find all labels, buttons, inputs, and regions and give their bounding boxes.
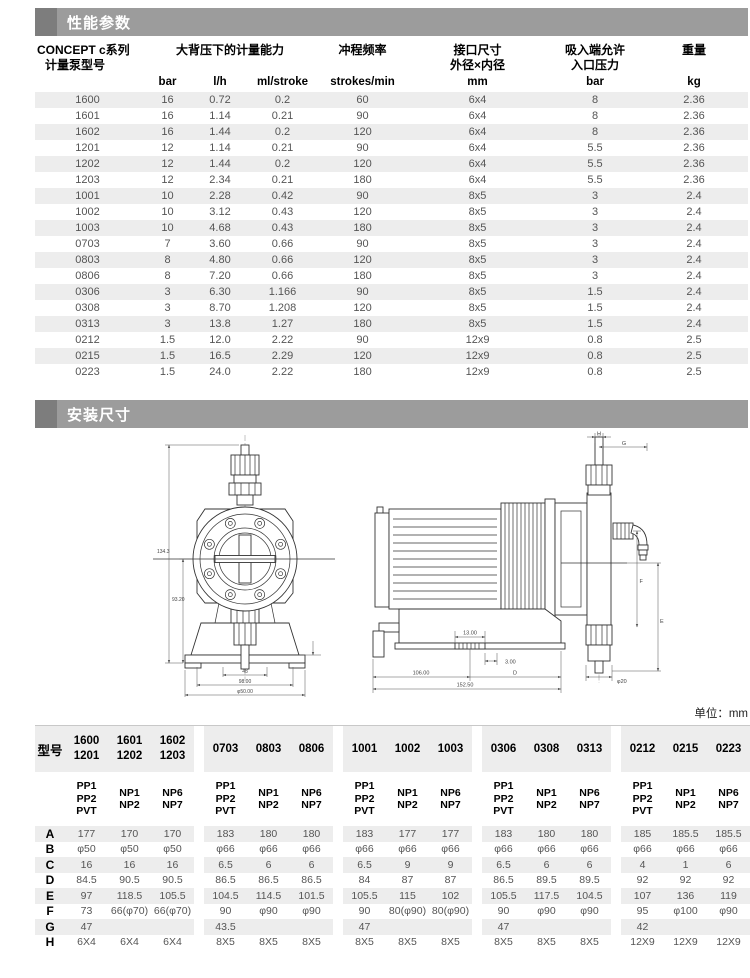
perf-units-row: bar l/h ml/stroke strokes/min mm bar kg bbox=[35, 74, 748, 92]
dim-value-cell: 6 bbox=[247, 857, 290, 873]
perf-value-cell: 1.27 bbox=[245, 316, 320, 332]
dim-value-cell: 6 bbox=[707, 857, 750, 873]
dim-material-cell: NP1NP2 bbox=[108, 772, 151, 826]
dim-value-cell: 84 bbox=[343, 873, 386, 889]
column-gap bbox=[333, 857, 343, 873]
perf-unit-kg: kg bbox=[640, 74, 748, 92]
dim-value-cell: 104.5 bbox=[568, 888, 611, 904]
pump-side-view-drawing: H G F E φ20 13.00 3.00 106.00 D 152.50 bbox=[365, 431, 665, 703]
perf-header-row: CONCEPT c系列 计量泵型号 大背压下的计量能力 冲程频率 接口尺寸 外径… bbox=[35, 42, 748, 74]
perf-value-cell: 0.43 bbox=[245, 204, 320, 220]
dim-value-cell bbox=[386, 919, 429, 935]
dim-value-cell: 183 bbox=[204, 826, 247, 842]
dim-value-cell: 185 bbox=[621, 826, 664, 842]
dim-material-cell: NP1NP2 bbox=[247, 772, 290, 826]
perf-table-row: 1602161.440.21206x482.36 bbox=[35, 124, 748, 140]
dim-value-cell: 12X9 bbox=[621, 935, 664, 951]
perf-value-cell: 2.34 bbox=[195, 172, 245, 188]
perf-value-cell: 2.36 bbox=[640, 108, 748, 124]
perf-table-row: 1003104.680.431808x532.4 bbox=[35, 220, 748, 236]
installation-drawings: 134.3 93.20 48 98.00 φ50.00 bbox=[35, 431, 748, 703]
section-bar-accent-square bbox=[35, 400, 57, 428]
dim-value-cell: 80(φ90) bbox=[386, 904, 429, 920]
perf-value-cell: 6x4 bbox=[405, 156, 550, 172]
perf-model-cell: 1203 bbox=[35, 172, 140, 188]
dim-model-cell: 0803 bbox=[247, 726, 290, 773]
dim-value-cell: 16 bbox=[65, 857, 108, 873]
dim-value-cell: 118.5 bbox=[108, 888, 151, 904]
dim-value-cell: 87 bbox=[429, 873, 472, 889]
perf-value-cell: 3 bbox=[550, 204, 640, 220]
dim-value-cell: 90 bbox=[343, 904, 386, 920]
performance-section-title: 性能参数 bbox=[67, 12, 131, 33]
performance-section-bar: 性能参数 bbox=[35, 8, 748, 36]
perf-header-suction-line2: 入口压力 bbox=[550, 58, 640, 73]
perf-header-model-line2: 计量泵型号 bbox=[37, 58, 140, 73]
column-gap bbox=[611, 726, 621, 773]
dim-value-cell: 8X5 bbox=[429, 935, 472, 951]
perf-unit-blank bbox=[35, 74, 140, 92]
dimension-label: 13.00 bbox=[463, 631, 477, 637]
dim-material-cell: PP1PP2PVT bbox=[204, 772, 247, 826]
dim-material-cell: PP1PP2PVT bbox=[482, 772, 525, 826]
perf-value-cell: 12 bbox=[140, 140, 195, 156]
dim-value-cell: φ66 bbox=[621, 842, 664, 858]
model-column-header: 型号 bbox=[35, 726, 65, 773]
perf-value-cell: 16.5 bbox=[195, 348, 245, 364]
perf-value-cell: 1.5 bbox=[140, 332, 195, 348]
dim-value-cell: 90 bbox=[482, 904, 525, 920]
column-gap bbox=[333, 873, 343, 889]
dim-row-label: F bbox=[35, 904, 65, 920]
dim-value-cell: 86.5 bbox=[204, 873, 247, 889]
perf-value-cell: 5.5 bbox=[550, 140, 640, 156]
perf-model-cell: 1001 bbox=[35, 188, 140, 204]
dim-value-cell: φ66 bbox=[664, 842, 707, 858]
perf-value-cell: 8 bbox=[550, 124, 640, 140]
column-gap bbox=[472, 826, 482, 842]
perf-table-row: 1201121.140.21906x45.52.36 bbox=[35, 140, 748, 156]
column-gap bbox=[611, 888, 621, 904]
column-gap bbox=[194, 857, 204, 873]
dim-value-cell: 8X5 bbox=[247, 935, 290, 951]
perf-value-cell: 1.5 bbox=[550, 316, 640, 332]
dim-model-cell: 16001201 bbox=[65, 726, 108, 773]
dim-value-cell: 43.5 bbox=[204, 919, 247, 935]
perf-header-weight: 重量 bbox=[640, 42, 748, 74]
dim-model-cell: 0215 bbox=[664, 726, 707, 773]
dim-value-cell: φ50 bbox=[65, 842, 108, 858]
perf-table-row: 070373.600.66908x532.4 bbox=[35, 236, 748, 252]
dim-table-row: C1616166.5666.5996.566416 bbox=[35, 857, 750, 873]
perf-header-model-line1: CONCEPT c系列 bbox=[37, 43, 140, 58]
dim-table-row: A177170170183180180183177177183180180185… bbox=[35, 826, 750, 842]
perf-value-cell: 1.44 bbox=[195, 124, 245, 140]
perf-value-cell: 6x4 bbox=[405, 108, 550, 124]
perf-value-cell: 8 bbox=[140, 252, 195, 268]
perf-value-cell: 2.36 bbox=[640, 92, 748, 108]
perf-value-cell: 8 bbox=[140, 268, 195, 284]
dim-value-cell bbox=[664, 919, 707, 935]
dimension-label: 3.00 bbox=[505, 660, 516, 666]
dim-value-cell: φ50 bbox=[151, 842, 194, 858]
perf-value-cell: 3 bbox=[550, 188, 640, 204]
perf-value-cell: 120 bbox=[320, 252, 405, 268]
perf-model-cell: 0803 bbox=[35, 252, 140, 268]
column-gap bbox=[333, 826, 343, 842]
column-gap bbox=[333, 904, 343, 920]
dim-value-cell: 117.5 bbox=[525, 888, 568, 904]
dim-value-cell: 6.5 bbox=[204, 857, 247, 873]
column-gap bbox=[611, 873, 621, 889]
perf-table-row: 02231.524.02.2218012x90.82.5 bbox=[35, 364, 748, 380]
column-gap bbox=[611, 826, 621, 842]
perf-value-cell: 8x5 bbox=[405, 220, 550, 236]
perf-model-cell: 1600 bbox=[35, 92, 140, 108]
dim-material-cell: NP6NP7 bbox=[707, 772, 750, 826]
perf-value-cell: 2.22 bbox=[245, 364, 320, 380]
dim-value-cell: 84.5 bbox=[65, 873, 108, 889]
dimension-label: φ50.00 bbox=[237, 689, 253, 695]
dim-value-cell: 1 bbox=[664, 857, 707, 873]
perf-value-cell: 2.4 bbox=[640, 316, 748, 332]
perf-value-cell: 1.14 bbox=[195, 108, 245, 124]
dim-material-cell: NP1NP2 bbox=[386, 772, 429, 826]
dim-value-cell: 89.5 bbox=[568, 873, 611, 889]
dim-value-cell: 8X5 bbox=[290, 935, 333, 951]
perf-table-row: 030838.701.2081208x51.52.4 bbox=[35, 300, 748, 316]
dim-row-label: C bbox=[35, 857, 65, 873]
perf-unit-bar: bar bbox=[140, 74, 195, 92]
perf-value-cell: 12x9 bbox=[405, 332, 550, 348]
dim-model-cell: 1002 bbox=[386, 726, 429, 773]
dim-value-cell: 4 bbox=[621, 857, 664, 873]
dim-value-cell: 6 bbox=[568, 857, 611, 873]
perf-table-row: 0313313.81.271808x51.52.4 bbox=[35, 316, 748, 332]
perf-value-cell: 8 bbox=[550, 92, 640, 108]
column-gap bbox=[194, 904, 204, 920]
perf-value-cell: 3 bbox=[550, 220, 640, 236]
dim-table-row: Bφ50φ50φ50φ66φ66φ66φ66φ66φ66φ66φ66φ66φ66… bbox=[35, 842, 750, 858]
column-gap bbox=[611, 935, 621, 951]
dim-value-cell: φ66 bbox=[386, 842, 429, 858]
perf-value-cell: 90 bbox=[320, 108, 405, 124]
perf-unit-lh: l/h bbox=[195, 74, 245, 92]
dim-value-cell: 66(φ70) bbox=[108, 904, 151, 920]
perf-value-cell: 90 bbox=[320, 236, 405, 252]
dim-value-cell: 8X5 bbox=[204, 935, 247, 951]
perf-table-row: 1202121.440.21206x45.52.36 bbox=[35, 156, 748, 172]
perf-value-cell: 6x4 bbox=[405, 172, 550, 188]
perf-value-cell: 12x9 bbox=[405, 348, 550, 364]
perf-value-cell: 1.44 bbox=[195, 156, 245, 172]
perf-value-cell: 6x4 bbox=[405, 92, 550, 108]
perf-value-cell: 1.14 bbox=[195, 140, 245, 156]
dim-value-cell: φ66 bbox=[290, 842, 333, 858]
perf-value-cell: 12 bbox=[140, 156, 195, 172]
perf-unit-mlstroke: ml/stroke bbox=[245, 74, 320, 92]
dim-model-cell: 0212 bbox=[621, 726, 664, 773]
perf-value-cell: 8x5 bbox=[405, 268, 550, 284]
dim-value-cell: 104.5 bbox=[204, 888, 247, 904]
dim-value-cell: 105.5 bbox=[482, 888, 525, 904]
perf-model-cell: 1002 bbox=[35, 204, 140, 220]
perf-value-cell: 8x5 bbox=[405, 204, 550, 220]
column-gap bbox=[611, 857, 621, 873]
perf-model-cell: 0313 bbox=[35, 316, 140, 332]
dim-model-cell: 1001 bbox=[343, 726, 386, 773]
perf-value-cell: 2.4 bbox=[640, 204, 748, 220]
pump-front-view-drawing: 134.3 93.20 48 98.00 φ50.00 bbox=[135, 431, 345, 703]
dimension-label: 152.50 bbox=[457, 683, 474, 689]
column-gap bbox=[333, 888, 343, 904]
dimension-label: 134.3 bbox=[157, 549, 170, 555]
column-gap bbox=[611, 842, 621, 858]
dimension-label: F bbox=[640, 579, 644, 585]
dim-value-cell: 89.5 bbox=[525, 873, 568, 889]
perf-value-cell: 120 bbox=[320, 348, 405, 364]
dim-value-cell bbox=[247, 919, 290, 935]
perf-header-capacity: 大背压下的计量能力 bbox=[140, 42, 320, 74]
dim-value-cell: 101.5 bbox=[290, 888, 333, 904]
dim-value-cell: φ90 bbox=[247, 904, 290, 920]
dimension-label: E bbox=[660, 619, 664, 625]
perf-value-cell: 120 bbox=[320, 156, 405, 172]
dim-model-cell: 16011202 bbox=[108, 726, 151, 773]
dimension-label: 98.00 bbox=[239, 679, 252, 685]
perf-value-cell: 2.5 bbox=[640, 332, 748, 348]
perf-model-cell: 1602 bbox=[35, 124, 140, 140]
perf-value-cell: 2.4 bbox=[640, 284, 748, 300]
dim-value-cell: 92 bbox=[707, 873, 750, 889]
perf-value-cell: 3 bbox=[140, 316, 195, 332]
dim-value-cell: 115 bbox=[386, 888, 429, 904]
column-gap bbox=[611, 904, 621, 920]
perf-value-cell: 24.0 bbox=[195, 364, 245, 380]
dim-value-cell: φ66 bbox=[343, 842, 386, 858]
dim-value-cell: 86.5 bbox=[290, 873, 333, 889]
perf-value-cell: 2.36 bbox=[640, 140, 748, 156]
dim-value-cell: 170 bbox=[108, 826, 151, 842]
column-gap bbox=[472, 919, 482, 935]
dim-value-cell: φ66 bbox=[247, 842, 290, 858]
perf-value-cell: 3 bbox=[140, 300, 195, 316]
dimension-label: H bbox=[597, 432, 601, 438]
performance-table: CONCEPT c系列 计量泵型号 大背压下的计量能力 冲程频率 接口尺寸 外径… bbox=[35, 42, 748, 380]
perf-unit-bar2: bar bbox=[550, 74, 640, 92]
column-gap bbox=[472, 888, 482, 904]
perf-value-cell: 3 bbox=[550, 252, 640, 268]
perf-value-cell: 6x4 bbox=[405, 140, 550, 156]
perf-model-cell: 0703 bbox=[35, 236, 140, 252]
column-gap bbox=[194, 919, 204, 935]
dim-value-cell bbox=[429, 919, 472, 935]
perf-value-cell: 60 bbox=[320, 92, 405, 108]
dimensions-section-title: 安装尺寸 bbox=[67, 404, 131, 425]
perf-value-cell: 2.4 bbox=[640, 268, 748, 284]
column-gap bbox=[333, 842, 343, 858]
perf-value-cell: 1.5 bbox=[550, 284, 640, 300]
perf-value-cell: 12x9 bbox=[405, 364, 550, 380]
dim-value-cell: 6X4 bbox=[65, 935, 108, 951]
dim-value-cell: φ90 bbox=[707, 904, 750, 920]
dim-value-cell: 185.5 bbox=[707, 826, 750, 842]
dim-value-cell: 180 bbox=[568, 826, 611, 842]
dim-value-cell: 8X5 bbox=[482, 935, 525, 951]
dim-value-cell bbox=[568, 919, 611, 935]
perf-value-cell: 0.21 bbox=[245, 140, 320, 156]
column-gap bbox=[611, 772, 621, 826]
perf-value-cell: 12.0 bbox=[195, 332, 245, 348]
dim-value-cell: 105.5 bbox=[343, 888, 386, 904]
dim-value-cell: 16 bbox=[151, 857, 194, 873]
column-gap bbox=[472, 842, 482, 858]
dim-value-cell: 180 bbox=[290, 826, 333, 842]
perf-value-cell: 1.5 bbox=[550, 300, 640, 316]
dim-value-cell: 16 bbox=[108, 857, 151, 873]
perf-value-cell: 120 bbox=[320, 204, 405, 220]
dim-value-cell: 42 bbox=[621, 919, 664, 935]
dim-value-cell: 177 bbox=[386, 826, 429, 842]
dim-value-cell: 8X5 bbox=[525, 935, 568, 951]
dim-value-cell: φ90 bbox=[290, 904, 333, 920]
dim-value-cell: 8X5 bbox=[386, 935, 429, 951]
perf-header-model: CONCEPT c系列 计量泵型号 bbox=[35, 42, 140, 74]
dimension-table: 型号16001201160112021602120307030803080610… bbox=[35, 725, 750, 950]
dim-model-cell: 0806 bbox=[290, 726, 333, 773]
column-gap bbox=[472, 857, 482, 873]
unit-note: 单位：mm bbox=[35, 705, 748, 721]
dim-value-cell: 6X4 bbox=[108, 935, 151, 951]
perf-value-cell: 10 bbox=[140, 204, 195, 220]
perf-value-cell: 8x5 bbox=[405, 316, 550, 332]
dim-value-cell: 6 bbox=[290, 857, 333, 873]
dim-value-cell: 114.5 bbox=[247, 888, 290, 904]
perf-unit-mm: mm bbox=[405, 74, 550, 92]
column-gap bbox=[194, 888, 204, 904]
perf-value-cell: 2.28 bbox=[195, 188, 245, 204]
perf-model-cell: 1601 bbox=[35, 108, 140, 124]
perf-value-cell: 5.5 bbox=[550, 156, 640, 172]
dim-value-cell: 6.5 bbox=[482, 857, 525, 873]
perf-value-cell: 7.20 bbox=[195, 268, 245, 284]
perf-value-cell: 8.70 bbox=[195, 300, 245, 316]
dim-row-label: H bbox=[35, 935, 65, 951]
perf-value-cell: 0.8 bbox=[550, 348, 640, 364]
perf-value-cell: 2.4 bbox=[640, 220, 748, 236]
dim-value-cell: φ66 bbox=[525, 842, 568, 858]
perf-unit-strokesmin: strokes/min bbox=[320, 74, 405, 92]
perf-value-cell: 3.60 bbox=[195, 236, 245, 252]
dim-value-cell: 95 bbox=[621, 904, 664, 920]
dim-row-label: G bbox=[35, 919, 65, 935]
dim-value-cell: 86.5 bbox=[482, 873, 525, 889]
dim-value-cell: 180 bbox=[247, 826, 290, 842]
perf-value-cell: 0.66 bbox=[245, 268, 320, 284]
dim-value-cell: 80(φ90) bbox=[429, 904, 472, 920]
perf-value-cell: 1.166 bbox=[245, 284, 320, 300]
perf-model-cell: 0215 bbox=[35, 348, 140, 364]
perf-table-row: 080687.200.661808x532.4 bbox=[35, 268, 748, 284]
perf-value-cell: 1.5 bbox=[140, 348, 195, 364]
perf-value-cell: 2.4 bbox=[640, 236, 748, 252]
perf-value-cell: 2.36 bbox=[640, 124, 748, 140]
perf-value-cell: 120 bbox=[320, 300, 405, 316]
section-bar-accent-square bbox=[35, 8, 57, 36]
dim-model-cell: 0703 bbox=[204, 726, 247, 773]
dim-value-cell: φ66 bbox=[482, 842, 525, 858]
dimension-label: D bbox=[513, 671, 517, 677]
dim-material-cell: PP1PP2PVT bbox=[343, 772, 386, 826]
perf-value-cell: 5.5 bbox=[550, 172, 640, 188]
dim-value-cell: 47 bbox=[343, 919, 386, 935]
dim-model-cell: 0223 bbox=[707, 726, 750, 773]
dim-material-cell: PP1PP2PVT bbox=[621, 772, 664, 826]
dim-material-cell: NP6NP7 bbox=[290, 772, 333, 826]
perf-value-cell: 2.36 bbox=[640, 156, 748, 172]
perf-value-cell: 6x4 bbox=[405, 124, 550, 140]
perf-value-cell: 0.2 bbox=[245, 92, 320, 108]
perf-table-row: 02121.512.02.229012x90.82.5 bbox=[35, 332, 748, 348]
perf-table-row: 1001102.280.42908x532.4 bbox=[35, 188, 748, 204]
perf-value-cell: 4.80 bbox=[195, 252, 245, 268]
perf-table-row: 1601161.140.21906x482.36 bbox=[35, 108, 748, 124]
perf-value-cell: 2.36 bbox=[640, 172, 748, 188]
dim-value-cell: 183 bbox=[343, 826, 386, 842]
dim-value-cell: 86.5 bbox=[247, 873, 290, 889]
dim-value-cell: 66(φ70) bbox=[151, 904, 194, 920]
dim-value-cell: 170 bbox=[151, 826, 194, 842]
dim-value-cell: 8X5 bbox=[343, 935, 386, 951]
dim-value-cell: 177 bbox=[429, 826, 472, 842]
column-gap bbox=[194, 935, 204, 951]
perf-value-cell: 0.21 bbox=[245, 172, 320, 188]
dim-material-cell: NP1NP2 bbox=[664, 772, 707, 826]
column-gap bbox=[472, 935, 482, 951]
perf-model-cell: 1201 bbox=[35, 140, 140, 156]
perf-header-suction: 吸入端允许 入口压力 bbox=[550, 42, 640, 74]
perf-value-cell: 90 bbox=[320, 140, 405, 156]
column-gap bbox=[611, 919, 621, 935]
column-gap bbox=[333, 935, 343, 951]
perf-value-cell: 2.22 bbox=[245, 332, 320, 348]
dim-model-cell: 0308 bbox=[525, 726, 568, 773]
perf-value-cell: 8x5 bbox=[405, 236, 550, 252]
dim-material-cell: NP6NP7 bbox=[151, 772, 194, 826]
perf-value-cell: 16 bbox=[140, 108, 195, 124]
perf-header-frequency: 冲程频率 bbox=[320, 42, 405, 74]
dim-model-cell: 0313 bbox=[568, 726, 611, 773]
perf-value-cell: 6.30 bbox=[195, 284, 245, 300]
perf-value-cell: 180 bbox=[320, 364, 405, 380]
column-gap bbox=[472, 873, 482, 889]
dim-value-cell: φ90 bbox=[568, 904, 611, 920]
perf-table-row: 030636.301.166908x51.52.4 bbox=[35, 284, 748, 300]
perf-value-cell: 180 bbox=[320, 316, 405, 332]
dim-row-label: E bbox=[35, 888, 65, 904]
column-gap bbox=[194, 842, 204, 858]
perf-header-port-line2: 外径×内径 bbox=[405, 58, 550, 73]
perf-value-cell: 90 bbox=[320, 284, 405, 300]
dim-value-cell: 136 bbox=[664, 888, 707, 904]
perf-model-cell: 0223 bbox=[35, 364, 140, 380]
perf-value-cell: 0.43 bbox=[245, 220, 320, 236]
dim-value-cell: 119 bbox=[707, 888, 750, 904]
dim-value-cell: 9 bbox=[429, 857, 472, 873]
perf-value-cell: 180 bbox=[320, 172, 405, 188]
dim-row-label: D bbox=[35, 873, 65, 889]
dim-value-cell: 87 bbox=[386, 873, 429, 889]
